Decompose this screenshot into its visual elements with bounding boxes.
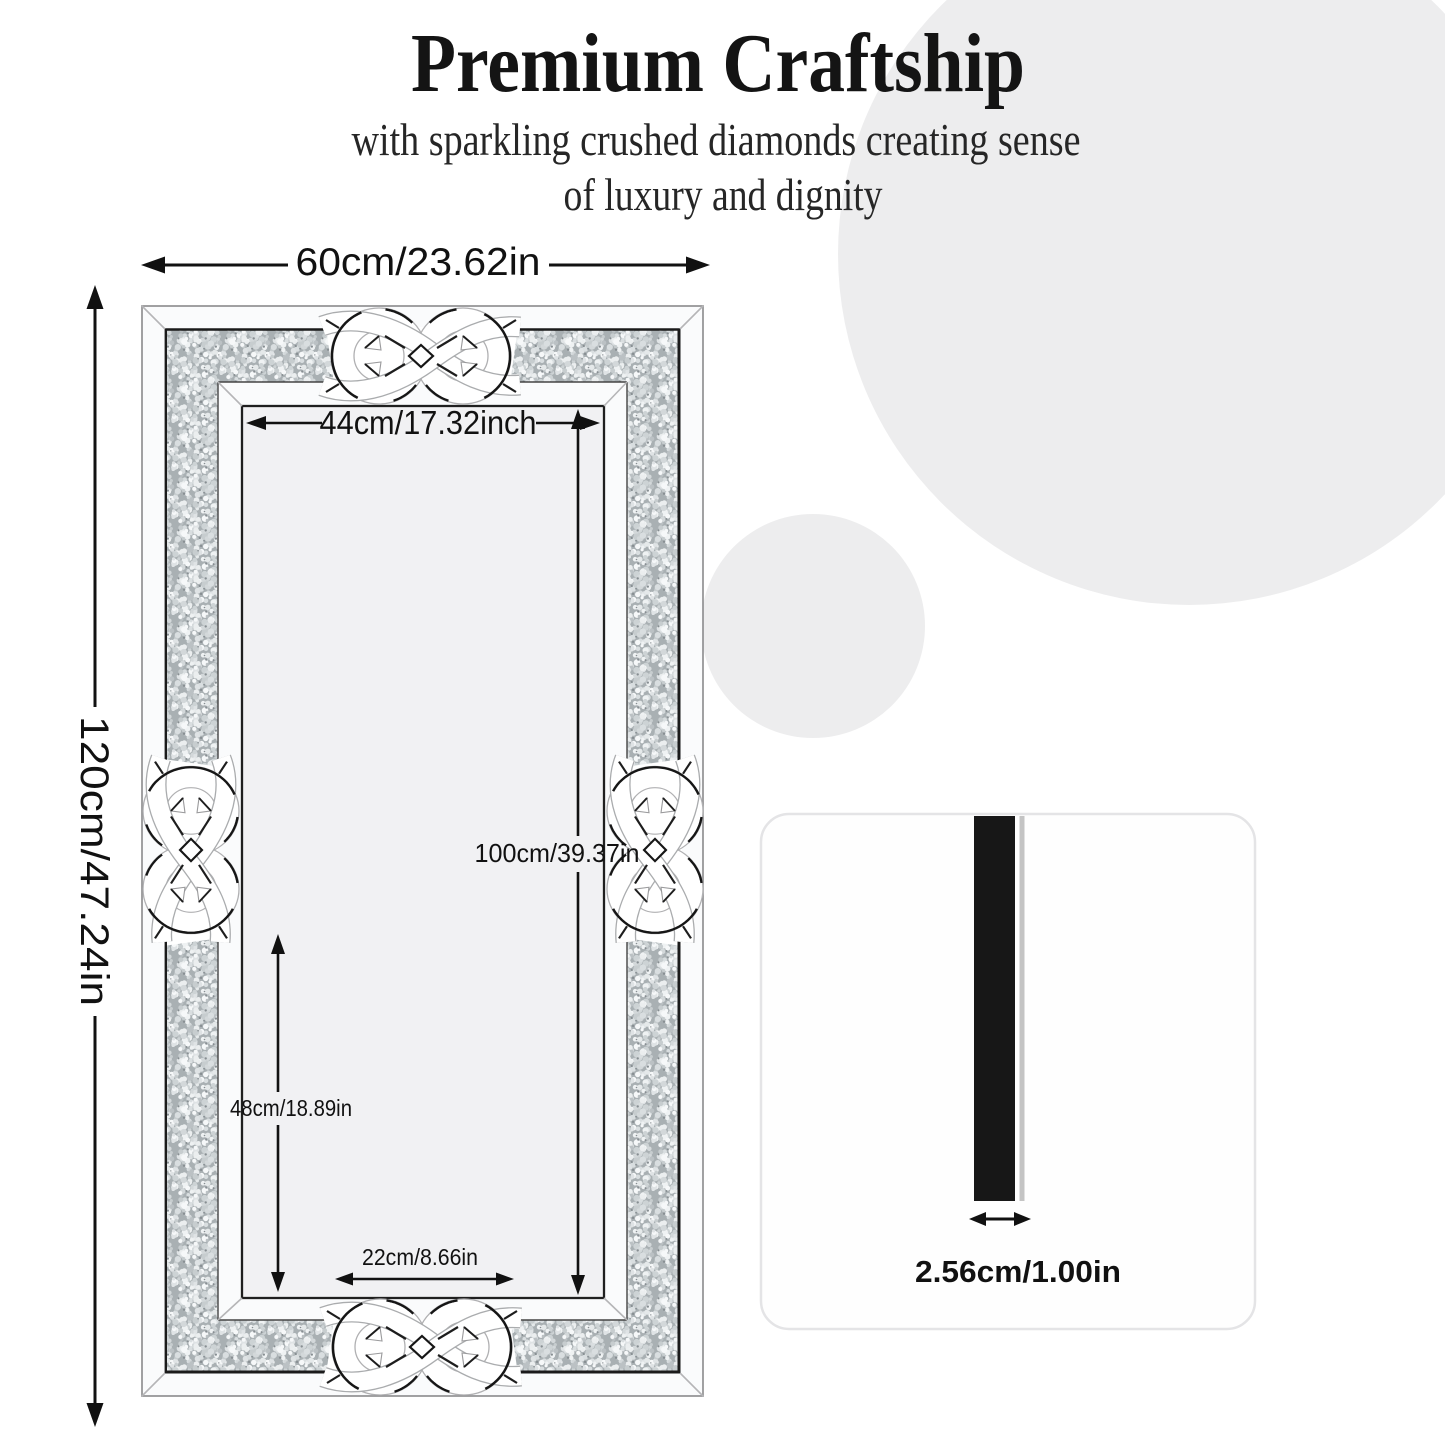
svg-text:of luxury and dignity: of luxury and dignity (564, 169, 883, 220)
svg-text:48cm/18.89in: 48cm/18.89in (230, 1095, 352, 1121)
svg-text:44cm/17.32inch: 44cm/17.32inch (320, 404, 537, 441)
svg-text:Premium Craftship: Premium Craftship (411, 17, 1025, 110)
svg-text:60cm/23.62in: 60cm/23.62in (296, 241, 541, 284)
svg-text:2.56cm/1.00in: 2.56cm/1.00in (915, 1254, 1121, 1289)
svg-text:120cm/47.24in: 120cm/47.24in (72, 716, 116, 1006)
svg-text:22cm/8.66in: 22cm/8.66in (362, 1244, 478, 1270)
svg-text:100cm/39.37in: 100cm/39.37in (475, 838, 640, 868)
svg-text:with sparkling crushed diamond: with sparkling crushed diamonds creating… (352, 114, 1081, 165)
